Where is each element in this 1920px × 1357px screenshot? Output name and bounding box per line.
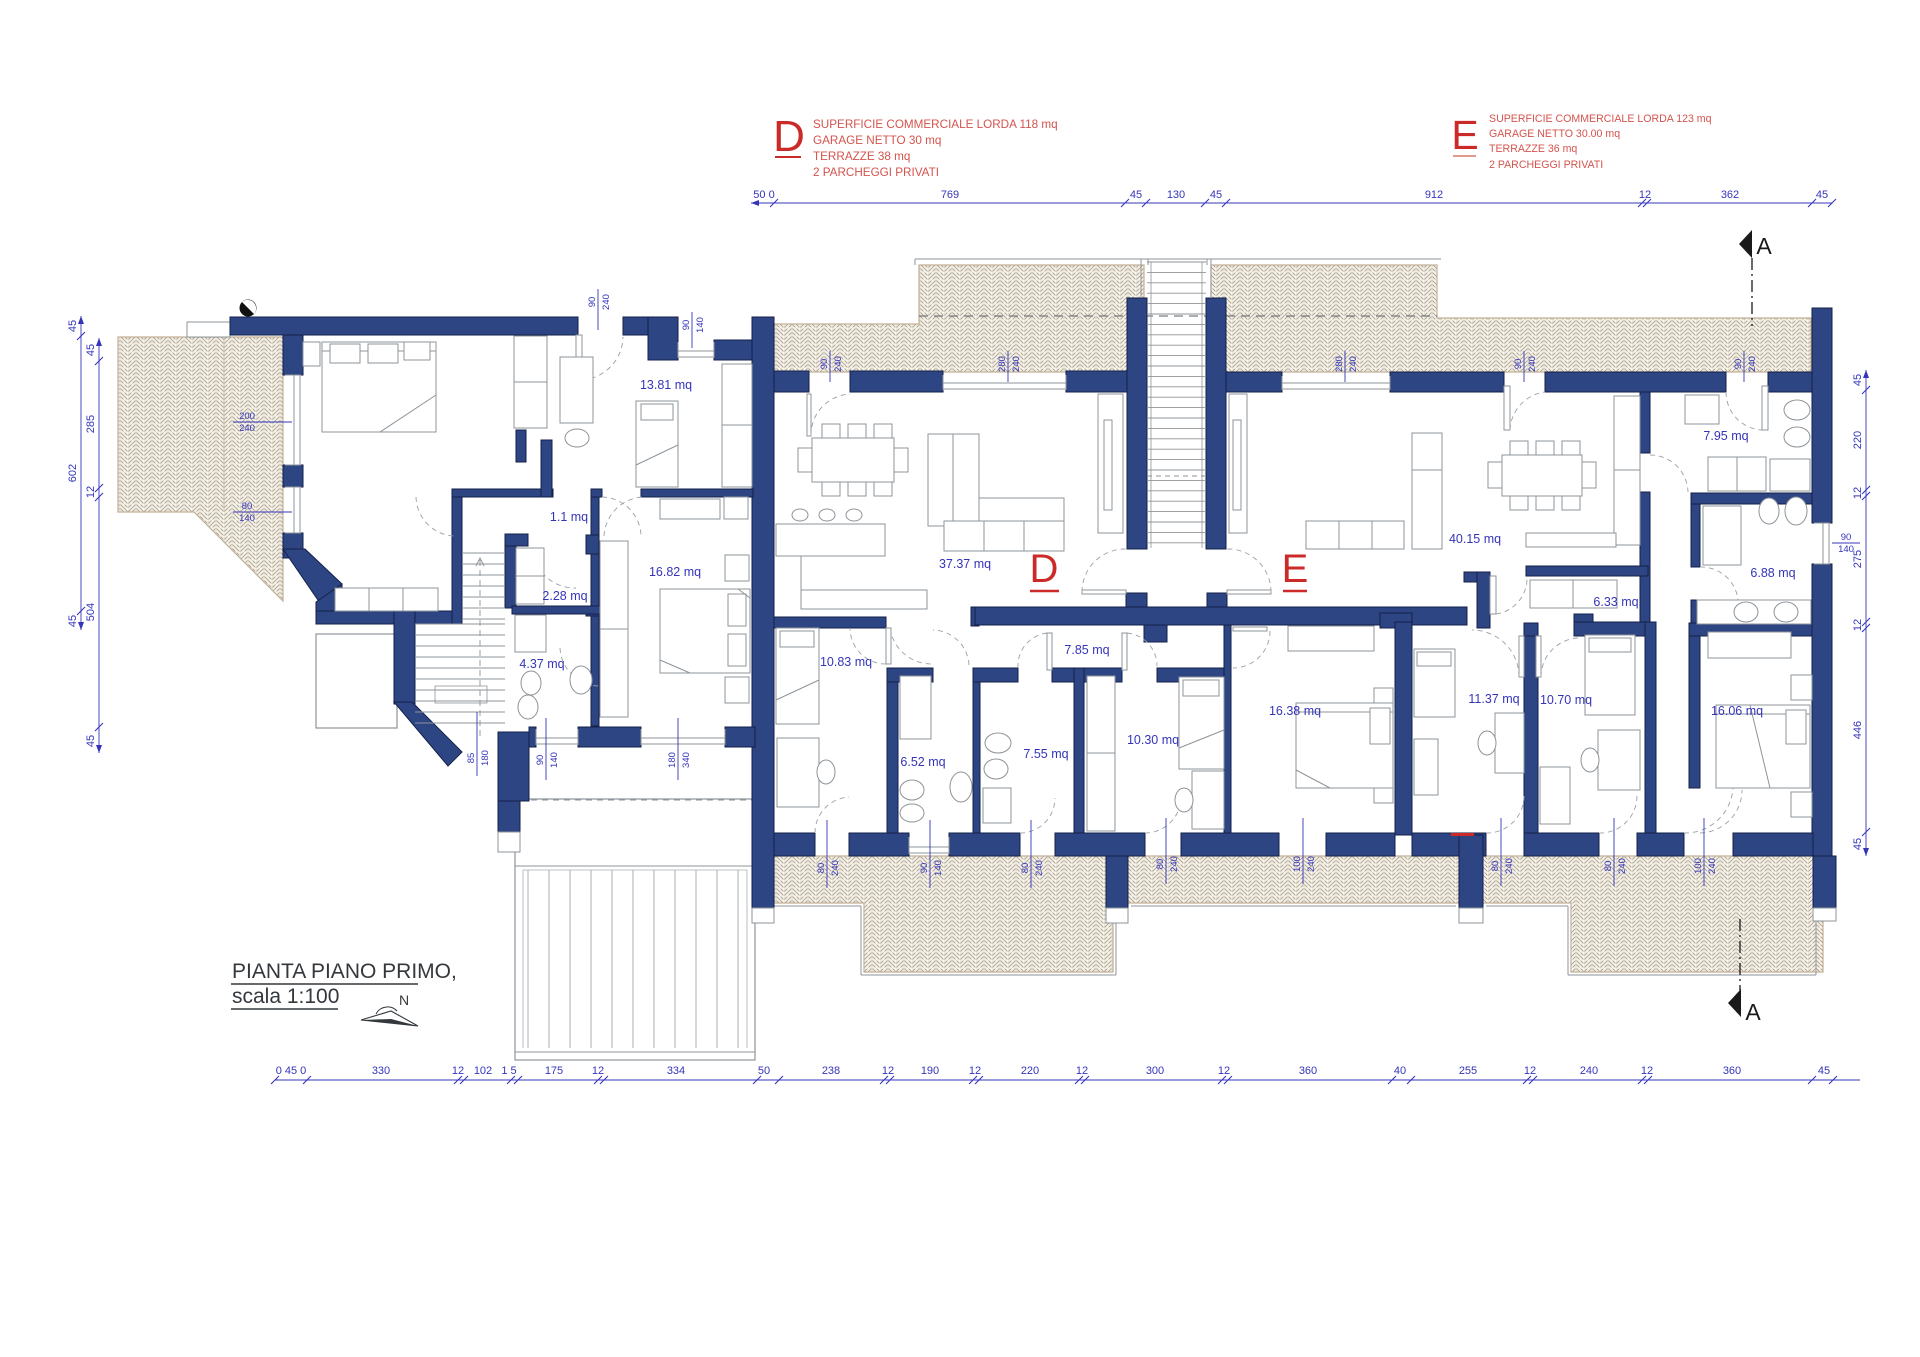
svg-text:12: 12 xyxy=(85,486,97,498)
svg-text:D: D xyxy=(773,112,805,161)
svg-text:45: 45 xyxy=(1210,189,1222,201)
svg-text:240: 240 xyxy=(1580,1065,1598,1077)
svg-text:240: 240 xyxy=(1707,858,1718,874)
svg-text:12: 12 xyxy=(882,1065,894,1077)
svg-text:602: 602 xyxy=(67,464,79,482)
svg-text:140: 140 xyxy=(239,513,255,524)
svg-text:140: 140 xyxy=(695,317,706,333)
svg-text:240: 240 xyxy=(601,294,612,310)
svg-text:50 0: 50 0 xyxy=(753,189,774,201)
svg-text:45: 45 xyxy=(85,344,97,356)
svg-text:37.37 mq: 37.37 mq xyxy=(939,557,991,571)
svg-text:280: 280 xyxy=(1334,356,1345,372)
svg-text:SUPERFICIE COMMERCIALE LORDA 1: SUPERFICIE COMMERCIALE LORDA 118 mq xyxy=(813,118,1058,131)
svg-text:90: 90 xyxy=(819,359,830,370)
svg-text:45: 45 xyxy=(1818,1065,1830,1077)
svg-text:769: 769 xyxy=(941,189,959,201)
svg-text:912: 912 xyxy=(1425,189,1443,201)
svg-text:2.28 mq: 2.28 mq xyxy=(542,589,587,603)
svg-text:GARAGE NETTO 30 mq: GARAGE NETTO 30 mq xyxy=(813,134,941,147)
svg-text:446: 446 xyxy=(1852,721,1864,739)
svg-text:240: 240 xyxy=(1348,356,1359,372)
svg-text:240: 240 xyxy=(1306,856,1317,872)
svg-text:102: 102 xyxy=(474,1065,492,1077)
svg-text:12: 12 xyxy=(592,1065,604,1077)
svg-text:12: 12 xyxy=(1641,1065,1653,1077)
svg-text:240: 240 xyxy=(1617,858,1628,874)
svg-text:240: 240 xyxy=(1527,356,1538,372)
svg-text:220: 220 xyxy=(1852,431,1864,449)
svg-text:90: 90 xyxy=(587,297,598,308)
svg-text:50: 50 xyxy=(758,1065,770,1077)
svg-text:90: 90 xyxy=(535,755,546,766)
svg-text:90: 90 xyxy=(1841,532,1852,543)
svg-text:45: 45 xyxy=(1852,374,1864,386)
svg-text:6.88 mq: 6.88 mq xyxy=(1750,566,1795,580)
svg-text:10.83 mq: 10.83 mq xyxy=(820,655,872,669)
svg-text:362: 362 xyxy=(1721,189,1739,201)
svg-text:16.06 mq: 16.06 mq xyxy=(1711,704,1763,718)
svg-text:240: 240 xyxy=(239,423,255,434)
svg-text:340: 340 xyxy=(681,752,692,768)
svg-text:180: 180 xyxy=(667,752,678,768)
svg-text:80: 80 xyxy=(1020,863,1031,874)
svg-text:45: 45 xyxy=(1852,838,1864,850)
svg-text:A: A xyxy=(1756,233,1772,259)
svg-text:175: 175 xyxy=(545,1065,563,1077)
svg-text:45: 45 xyxy=(1816,189,1828,201)
svg-text:scala 1:100: scala 1:100 xyxy=(232,985,339,1008)
svg-text:E: E xyxy=(1282,547,1309,591)
svg-text:16.38 mq: 16.38 mq xyxy=(1269,704,1321,718)
svg-text:N: N xyxy=(399,992,409,1008)
svg-text:85: 85 xyxy=(466,753,477,764)
svg-text:300: 300 xyxy=(1146,1065,1164,1077)
svg-text:10.30 mq: 10.30 mq xyxy=(1127,733,1179,747)
svg-text:0 45 0: 0 45 0 xyxy=(276,1065,307,1077)
svg-text:12: 12 xyxy=(1076,1065,1088,1077)
svg-text:45: 45 xyxy=(85,735,97,747)
svg-text:240: 240 xyxy=(833,356,844,372)
svg-text:90: 90 xyxy=(919,863,930,874)
svg-text:12: 12 xyxy=(1524,1065,1536,1077)
svg-text:280: 280 xyxy=(997,356,1008,372)
svg-text:180: 180 xyxy=(480,750,491,766)
svg-text:2 PARCHEGGI PRIVATI: 2 PARCHEGGI PRIVATI xyxy=(1489,159,1603,171)
svg-text:80: 80 xyxy=(1490,861,1501,872)
svg-text:12: 12 xyxy=(969,1065,981,1077)
svg-text:130: 130 xyxy=(1167,189,1185,201)
svg-text:504: 504 xyxy=(85,603,97,621)
svg-text:TERRAZZE 38 mq: TERRAZZE 38 mq xyxy=(813,150,910,163)
svg-text:330: 330 xyxy=(372,1065,390,1077)
svg-text:12: 12 xyxy=(452,1065,464,1077)
svg-text:1 5: 1 5 xyxy=(501,1065,516,1077)
svg-text:200: 200 xyxy=(239,411,255,422)
svg-text:240: 240 xyxy=(1011,356,1022,372)
svg-text:45: 45 xyxy=(67,615,79,627)
svg-text:90: 90 xyxy=(1513,359,1524,370)
svg-text:SUPERFICIE COMMERCIALE LORDA 1: SUPERFICIE COMMERCIALE LORDA 123 mq xyxy=(1489,113,1712,125)
svg-text:90: 90 xyxy=(1733,359,1744,370)
svg-text:10.70 mq: 10.70 mq xyxy=(1540,693,1592,707)
svg-text:140: 140 xyxy=(933,860,944,876)
svg-text:PIANTA PIANO PRIMO,: PIANTA PIANO PRIMO, xyxy=(232,960,457,983)
svg-text:238: 238 xyxy=(822,1065,840,1077)
svg-text:360: 360 xyxy=(1299,1065,1317,1077)
svg-text:80: 80 xyxy=(816,863,827,874)
svg-text:6.52 mq: 6.52 mq xyxy=(900,755,945,769)
svg-text:80: 80 xyxy=(1603,861,1614,872)
svg-text:240: 240 xyxy=(1747,356,1758,372)
svg-text:12: 12 xyxy=(1852,619,1864,631)
svg-text:190: 190 xyxy=(921,1065,939,1077)
svg-text:6.33 mq: 6.33 mq xyxy=(1593,595,1638,609)
svg-text:90: 90 xyxy=(681,320,692,331)
svg-text:12: 12 xyxy=(1639,189,1651,201)
svg-text:E: E xyxy=(1451,112,1478,158)
svg-text:7.85 mq: 7.85 mq xyxy=(1064,643,1109,657)
svg-text:334: 334 xyxy=(667,1065,685,1077)
svg-text:240: 240 xyxy=(1169,856,1180,872)
svg-text:360: 360 xyxy=(1723,1065,1741,1077)
svg-text:40.15 mq: 40.15 mq xyxy=(1449,532,1501,546)
svg-text:240: 240 xyxy=(1034,860,1045,876)
svg-text:45: 45 xyxy=(67,320,79,332)
svg-text:1.1 mq: 1.1 mq xyxy=(550,510,588,524)
svg-text:12: 12 xyxy=(1218,1065,1230,1077)
svg-text:7.55 mq: 7.55 mq xyxy=(1023,747,1068,761)
svg-text:285: 285 xyxy=(85,415,97,433)
svg-text:255: 255 xyxy=(1459,1065,1477,1077)
svg-text:16.82 mq: 16.82 mq xyxy=(649,565,701,579)
svg-text:A: A xyxy=(1745,999,1761,1025)
svg-text:100: 100 xyxy=(1693,858,1704,874)
svg-text:4.37 mq: 4.37 mq xyxy=(519,657,564,671)
svg-text:7.95 mq: 7.95 mq xyxy=(1703,429,1748,443)
svg-text:D: D xyxy=(1030,547,1059,591)
svg-text:2 PARCHEGGI PRIVATI: 2 PARCHEGGI PRIVATI xyxy=(813,166,939,179)
svg-text:12: 12 xyxy=(1852,487,1864,499)
svg-text:40: 40 xyxy=(1394,1065,1406,1077)
svg-text:80: 80 xyxy=(242,501,253,512)
svg-text:80: 80 xyxy=(1155,859,1166,870)
svg-text:140: 140 xyxy=(1838,544,1854,555)
svg-text:220: 220 xyxy=(1021,1065,1039,1077)
svg-text:13.81 mq: 13.81 mq xyxy=(640,378,692,392)
svg-text:100: 100 xyxy=(1292,856,1303,872)
svg-text:45: 45 xyxy=(1130,189,1142,201)
svg-text:240: 240 xyxy=(1504,858,1515,874)
svg-text:240: 240 xyxy=(830,860,841,876)
svg-text:11.37 mq: 11.37 mq xyxy=(1468,692,1519,706)
svg-text:TERRAZZE 36 mq: TERRAZZE 36 mq xyxy=(1489,143,1577,155)
svg-text:GARAGE NETTO 30.00 mq: GARAGE NETTO 30.00 mq xyxy=(1489,128,1620,140)
svg-text:140: 140 xyxy=(549,752,560,768)
